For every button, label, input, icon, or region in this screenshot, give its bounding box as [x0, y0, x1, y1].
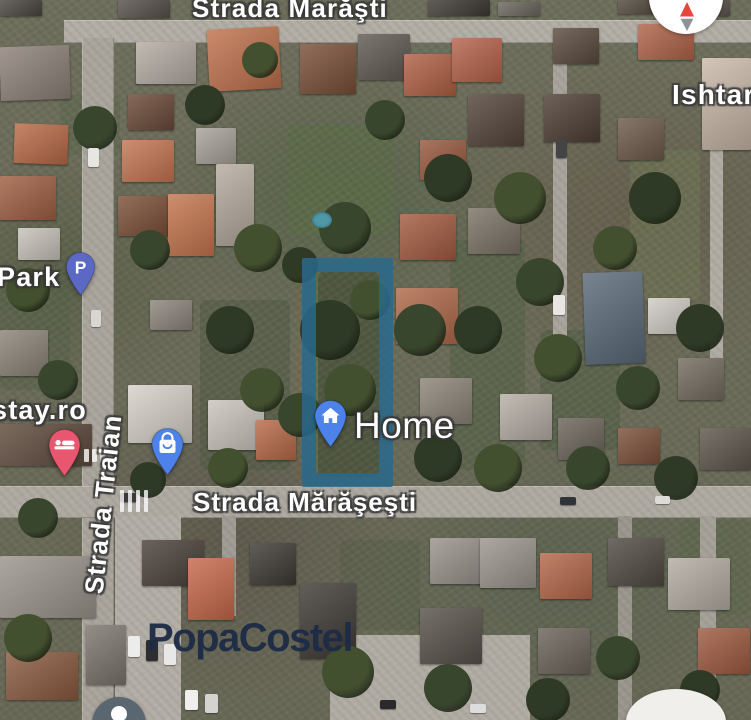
house-roof: [150, 300, 192, 330]
tree: [18, 498, 58, 538]
property-boundary-rectangle: [302, 258, 393, 487]
crosswalk-stripe: [84, 449, 89, 462]
house-roof: [430, 538, 486, 584]
house-roof: [608, 538, 664, 586]
stay-ro-label: stay.ro: [0, 395, 87, 426]
ishtar-label: Ishtar: [672, 79, 751, 111]
tree: [593, 226, 637, 270]
house-roof: [13, 123, 68, 165]
house-roof: [136, 42, 196, 84]
shopping-bag-pin-icon[interactable]: [149, 427, 186, 477]
house-roof: [358, 34, 410, 80]
tree: [38, 360, 78, 400]
house-roof: [122, 140, 174, 182]
house-roof: [668, 558, 730, 610]
tree: [206, 306, 254, 354]
satellite-map[interactable]: Strada Marăşti Strada Mărăşeşti Strada T…: [0, 0, 751, 720]
tree: [616, 366, 660, 410]
tree: [185, 85, 225, 125]
car: [560, 497, 576, 505]
crosswalk-stripe: [136, 490, 140, 512]
hotel-bed-pin-icon[interactable]: [46, 428, 83, 478]
pool: [312, 212, 332, 228]
parking-pin-icon[interactable]: P: [64, 251, 97, 297]
house-roof: [480, 538, 536, 588]
tree: [654, 456, 698, 500]
tree: [424, 664, 472, 712]
house-roof: [0, 0, 42, 16]
tree: [242, 42, 278, 78]
house-roof: [468, 94, 524, 146]
house-roof: [118, 0, 170, 18]
car: [205, 694, 218, 713]
house-roof: [18, 228, 60, 260]
house-roof: [420, 608, 482, 664]
car: [128, 636, 140, 657]
house-roof: [538, 628, 590, 674]
tree: [454, 306, 502, 354]
house-roof: [404, 54, 456, 96]
crosswalk-stripe: [128, 490, 132, 512]
house-roof: [128, 94, 174, 130]
tree: [629, 172, 681, 224]
house-roof: [582, 271, 645, 365]
house-roof: [553, 28, 599, 64]
car: [553, 295, 565, 315]
house-roof: [300, 44, 356, 94]
house-roof: [168, 194, 214, 256]
park-label: Park: [0, 262, 60, 293]
house-roof: [0, 176, 56, 220]
house-roof: [452, 38, 502, 82]
tree: [240, 368, 284, 412]
tree: [424, 154, 472, 202]
tree: [534, 334, 582, 382]
car: [380, 700, 396, 709]
tree: [234, 224, 282, 272]
tree: [208, 448, 248, 488]
car: [185, 690, 198, 710]
house-roof: [700, 428, 751, 470]
car: [556, 140, 567, 158]
home-label: Home: [354, 405, 455, 447]
house-roof: [498, 2, 540, 16]
house-roof: [428, 0, 490, 16]
driveway-strip: [553, 30, 567, 375]
tree: [394, 304, 446, 356]
tree: [73, 106, 117, 150]
tree: [365, 100, 405, 140]
house-roof: [188, 558, 234, 620]
street-label-marasti: Strada Marăşti: [192, 0, 388, 24]
parking-letter: P: [75, 258, 87, 278]
popacostel-watermark: PopaCostel: [147, 616, 352, 661]
house-roof: [196, 128, 236, 164]
compass-needle-icon: [667, 1, 707, 32]
house-roof: [0, 45, 71, 101]
tree: [566, 446, 610, 490]
house-roof: [540, 553, 592, 599]
car: [470, 704, 486, 713]
marker-dot: [111, 706, 127, 720]
tree: [494, 172, 546, 224]
house-roof: [544, 94, 600, 142]
house-roof: [86, 625, 126, 685]
tree: [596, 636, 640, 680]
house-roof: [678, 358, 724, 400]
house-roof: [698, 628, 750, 674]
tree: [474, 444, 522, 492]
tree: [319, 202, 371, 254]
house-roof: [618, 428, 660, 464]
tree: [676, 304, 724, 352]
house-roof: [400, 214, 456, 260]
tree: [526, 678, 570, 720]
home-pin-icon[interactable]: [312, 399, 349, 449]
car: [91, 310, 101, 327]
tree: [130, 230, 170, 270]
crosswalk-stripe: [144, 490, 148, 512]
car: [88, 148, 99, 167]
street-label-marasesti: Strada Mărăşeşti: [193, 487, 417, 518]
tree: [4, 614, 52, 662]
house-roof: [500, 394, 552, 440]
house-roof: [618, 118, 664, 160]
house-roof: [250, 543, 296, 585]
bed-icon: [55, 440, 75, 450]
car: [655, 496, 670, 504]
